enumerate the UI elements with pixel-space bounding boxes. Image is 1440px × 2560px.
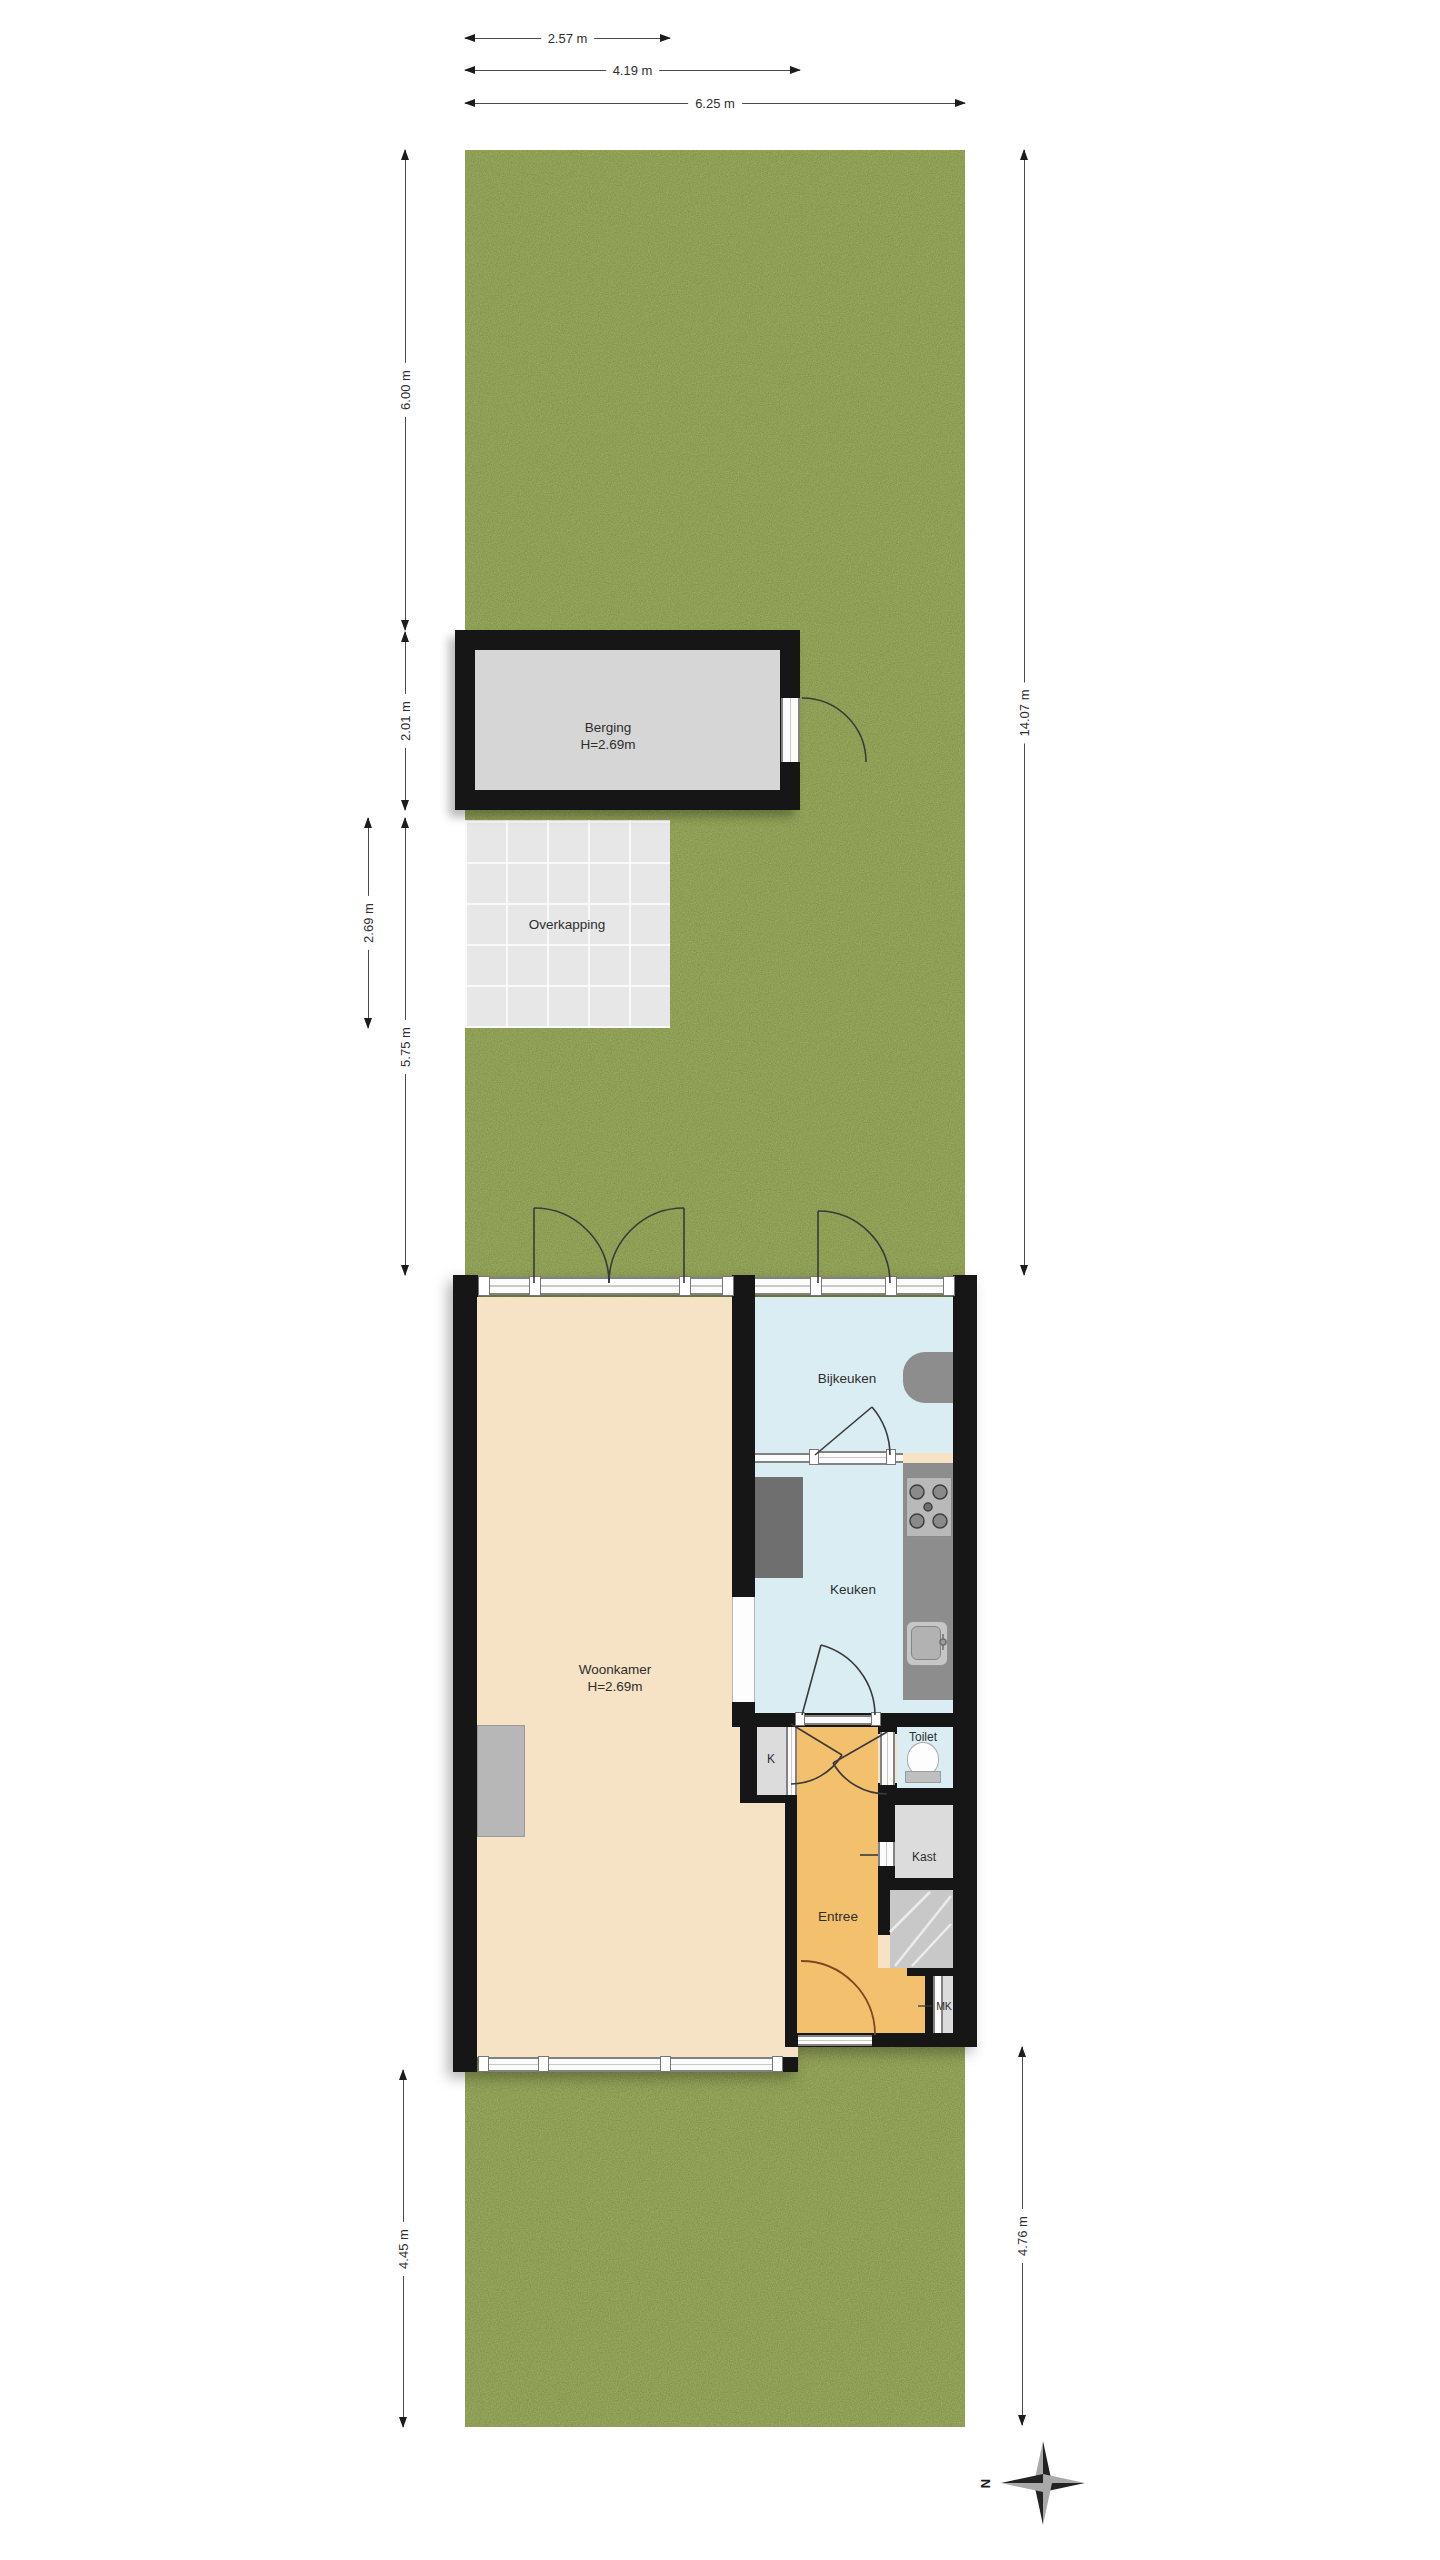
arrow-right-icon bbox=[660, 34, 671, 42]
wall-segment bbox=[878, 1788, 953, 1805]
arrow-left-icon bbox=[464, 99, 475, 107]
kast-door bbox=[878, 1842, 895, 1866]
compass-rose-icon bbox=[985, 2425, 1105, 2545]
wall-segment bbox=[732, 1713, 953, 1727]
room-name: Berging bbox=[580, 719, 635, 736]
dim-top-2: 4.19 m bbox=[465, 63, 800, 77]
dim-label: 14.07 m bbox=[1016, 682, 1033, 743]
wall-segment bbox=[953, 1275, 977, 2047]
compass-north-label: N bbox=[978, 2479, 993, 2488]
woonkamer-floor bbox=[477, 1297, 953, 2033]
wall-opening bbox=[732, 1597, 755, 1702]
dim-right-14-07: 14.07 m bbox=[1016, 150, 1032, 1275]
arrow-down-icon bbox=[399, 2417, 407, 2428]
wall-segment bbox=[740, 1713, 757, 1803]
room-name: Toilet bbox=[909, 1729, 937, 1746]
jamb bbox=[809, 1449, 819, 1465]
bijkeuken-label: Bijkeuken bbox=[818, 1370, 877, 1387]
overkapping-label: Overkapping bbox=[529, 916, 606, 933]
jamb bbox=[795, 1712, 805, 1726]
keuken-counter bbox=[903, 1463, 953, 1700]
dim-top-3: 6.25 m bbox=[465, 96, 965, 110]
woonkamer-cabinet bbox=[477, 1725, 525, 1837]
woonkamer-label: Woonkamer H=2.69m bbox=[579, 1661, 652, 1695]
wall-segment bbox=[732, 1702, 755, 1727]
dim-top-1: 2.57 m bbox=[465, 31, 670, 45]
berging-label: Berging H=2.69m bbox=[580, 719, 635, 753]
keuken-label: Keuken bbox=[830, 1581, 876, 1598]
dim-label: 2.01 m bbox=[397, 694, 414, 748]
dim-label: 4.76 m bbox=[1014, 2209, 1031, 2263]
wall-segment bbox=[878, 1783, 897, 1805]
bijkeuken-door bbox=[815, 1451, 890, 1465]
toilet-bowl bbox=[907, 1742, 939, 1776]
arrow-right-icon bbox=[790, 66, 801, 74]
dim-label: 5.75 m bbox=[397, 1020, 414, 1074]
kast-floor bbox=[895, 1805, 953, 1878]
dim-right-4-76: 4.76 m bbox=[1014, 2047, 1030, 2425]
room-name: MK bbox=[936, 1998, 952, 2015]
wall-segment bbox=[878, 1890, 890, 1935]
arrow-down-icon bbox=[1020, 1265, 1028, 1276]
wall-segment bbox=[878, 1805, 895, 1842]
sink bbox=[906, 1621, 948, 1666]
dim-left-6-00: 6.00 m bbox=[397, 150, 413, 630]
room-name: Overkapping bbox=[529, 916, 606, 933]
wall-segment bbox=[740, 1795, 797, 1803]
arrow-up-icon bbox=[401, 631, 409, 642]
dim-label: 4.19 m bbox=[606, 62, 660, 79]
room-height: H=2.69m bbox=[580, 736, 635, 753]
stairs bbox=[890, 1890, 953, 1968]
room-name: Entree bbox=[818, 1908, 858, 1925]
dim-label: 2.57 m bbox=[541, 30, 595, 47]
bijkeuken-keuken-wall bbox=[755, 1453, 903, 1463]
toilet-door bbox=[880, 1732, 895, 1785]
arrow-up-icon bbox=[1018, 2046, 1026, 2057]
k-closet-door bbox=[786, 1727, 797, 1795]
entree-label: Entree bbox=[818, 1908, 858, 1925]
arrow-down-icon bbox=[401, 800, 409, 811]
arrow-up-icon bbox=[401, 149, 409, 160]
room-name: Bijkeuken bbox=[818, 1370, 877, 1387]
dim-left-2-01: 2.01 m bbox=[397, 632, 413, 810]
wall-segment bbox=[732, 1297, 755, 1597]
wall-segment bbox=[785, 1803, 797, 2033]
dim-left-2-69: 2.69 m bbox=[360, 818, 376, 1028]
room-name: Woonkamer bbox=[579, 1661, 652, 1678]
arrow-right-icon bbox=[955, 99, 966, 107]
dim-label: 6.25 m bbox=[688, 95, 742, 112]
room-name: Keuken bbox=[830, 1581, 876, 1598]
toilet-label: Toilet bbox=[909, 1729, 937, 1746]
keuken-entree-door bbox=[800, 1715, 875, 1725]
jamb bbox=[871, 1712, 881, 1726]
dim-left-5-75: 5.75 m bbox=[397, 818, 413, 1275]
wall-segment bbox=[925, 1976, 933, 2033]
garden-bottom-grass bbox=[465, 2045, 965, 2427]
arrow-down-icon bbox=[401, 620, 409, 631]
meterkast-label: MK bbox=[936, 1998, 952, 2015]
keuken-tall-cabinet bbox=[755, 1477, 803, 1578]
dim-label: 2.69 m bbox=[360, 896, 377, 950]
arrow-up-icon bbox=[401, 817, 409, 828]
arrow-up-icon bbox=[1020, 149, 1028, 160]
wall-segment bbox=[878, 1878, 953, 1890]
dim-label: 6.00 m bbox=[397, 363, 414, 417]
wall-segment bbox=[907, 1968, 953, 1976]
arrow-down-icon bbox=[401, 1265, 409, 1276]
arrow-up-icon bbox=[399, 2069, 407, 2080]
bijkeuken-counter bbox=[903, 1352, 953, 1403]
room-name: Kast bbox=[912, 1849, 936, 1866]
arrow-left-icon bbox=[464, 66, 475, 74]
dim-label: 4.45 m bbox=[395, 2222, 412, 2276]
berging-door bbox=[781, 698, 800, 762]
wall-segment bbox=[878, 1866, 895, 1890]
dim-left-4-45: 4.45 m bbox=[395, 2070, 411, 2427]
floorplan-page: 2.57 m 4.19 m 6.25 m 6.00 m 2.01 m 2.69 … bbox=[0, 0, 1440, 2560]
stove bbox=[906, 1477, 952, 1537]
room-height: H=2.69m bbox=[579, 1678, 652, 1695]
kast-label: Kast bbox=[912, 1849, 936, 1866]
arrow-down-icon bbox=[364, 1018, 372, 1029]
arrow-left-icon bbox=[464, 34, 475, 42]
jamb bbox=[886, 1449, 896, 1465]
wall-segment bbox=[878, 1727, 897, 1734]
entree-floor-east bbox=[878, 1968, 925, 2033]
entree-floor bbox=[797, 1727, 878, 2033]
sink-basin bbox=[911, 1626, 941, 1660]
room-name: K bbox=[767, 1751, 775, 1768]
k-closet-label: K bbox=[767, 1751, 775, 1768]
wall-segment bbox=[453, 1275, 477, 2072]
toilet-tank bbox=[905, 1771, 941, 1783]
arrow-up-icon bbox=[364, 817, 372, 828]
